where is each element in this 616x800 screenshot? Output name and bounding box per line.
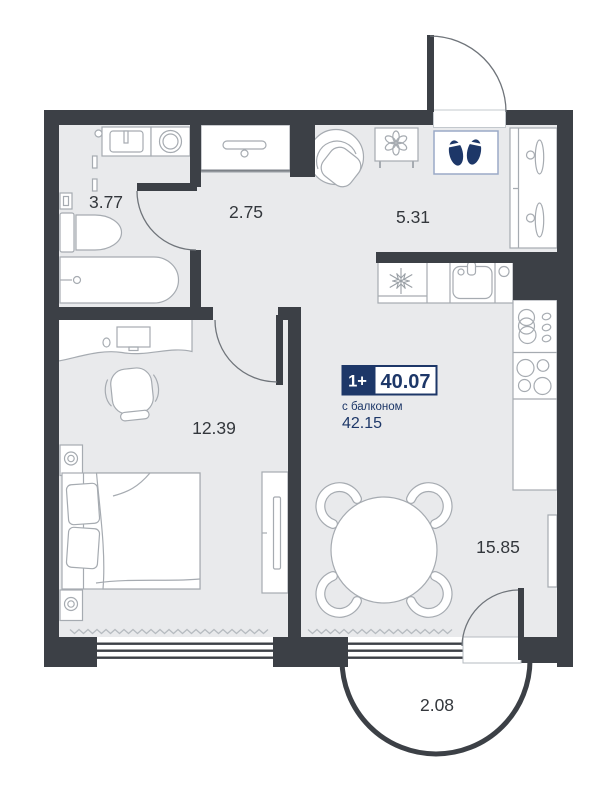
- radiator: [548, 515, 557, 587]
- towel-rail-bracket: [93, 156, 98, 168]
- blanket: [97, 473, 201, 589]
- bathroom-area-label: 3.77: [89, 192, 123, 212]
- wall-closet-stub: [290, 125, 315, 177]
- wall-bedroom-top: [44, 307, 213, 320]
- entrance-marker: [434, 131, 498, 174]
- door-stop-dot: [95, 130, 102, 137]
- radiator: [60, 590, 83, 621]
- washing-machine-icon: [151, 127, 190, 156]
- wall-right: [557, 110, 573, 667]
- balcony-area-label: 2.08: [420, 695, 454, 715]
- bathtub-icon: [60, 257, 179, 303]
- area-with-balcony-label: 42.15: [342, 415, 382, 432]
- hallway-area-label: 2.75: [229, 202, 263, 222]
- wall-left: [44, 110, 59, 667]
- bedroom-door-leaf: [276, 315, 283, 385]
- total-area-label: 40.07: [380, 371, 430, 393]
- vent-shaft: [513, 252, 557, 300]
- toilet-icon: [76, 215, 122, 250]
- towel-rail-bracket: [93, 179, 98, 191]
- wall-bottom-left: [44, 637, 97, 667]
- nightstand: [60, 445, 83, 476]
- wall-bottom-center: [273, 637, 348, 667]
- floor-plan-page: 1+ 40.07 с балконом 42.15 3.77 2.75 5.31…: [0, 0, 616, 800]
- coat-rail-icon: [223, 141, 266, 149]
- balcony-door-leaf: [518, 588, 524, 660]
- wall-inner-vertical: [288, 307, 301, 637]
- dining-table-icon: [331, 497, 437, 603]
- kitchen-living-area-label: 15.85: [476, 537, 520, 557]
- wall-bathroom-lower: [190, 250, 201, 310]
- sink-faucet-icon: [124, 131, 128, 143]
- hall-closet: [201, 125, 290, 172]
- wall-kitchen: [376, 252, 513, 263]
- kitchen-faucet-icon: [468, 262, 476, 275]
- bedroom-area-label: 12.39: [192, 418, 236, 438]
- wall-bathroom-upper: [190, 125, 201, 187]
- balcony-threshold: [463, 637, 521, 663]
- entrance-door-leaf: [427, 35, 434, 112]
- wall-top-right: [505, 110, 557, 125]
- entrance-threshold: [434, 110, 506, 128]
- pillow: [66, 483, 100, 525]
- wall-top-left: [44, 110, 434, 125]
- toilet-tank: [60, 213, 74, 252]
- floor-plan-svg: 1+ 40.07 с балконом 42.15 3.77 2.75 5.31…: [0, 0, 616, 800]
- entrance-marker-box: [434, 131, 498, 174]
- paper-holder-icon: [60, 193, 72, 209]
- wall-bottom-right: [521, 637, 573, 663]
- pillow: [66, 527, 100, 569]
- rooms-badge-label: 1+: [348, 373, 367, 391]
- entry-area-label: 5.31: [396, 207, 430, 227]
- monitor-icon: [117, 327, 150, 347]
- balcony-note-label: с балконом: [342, 401, 403, 413]
- bathroom-door-leaf: [137, 183, 197, 191]
